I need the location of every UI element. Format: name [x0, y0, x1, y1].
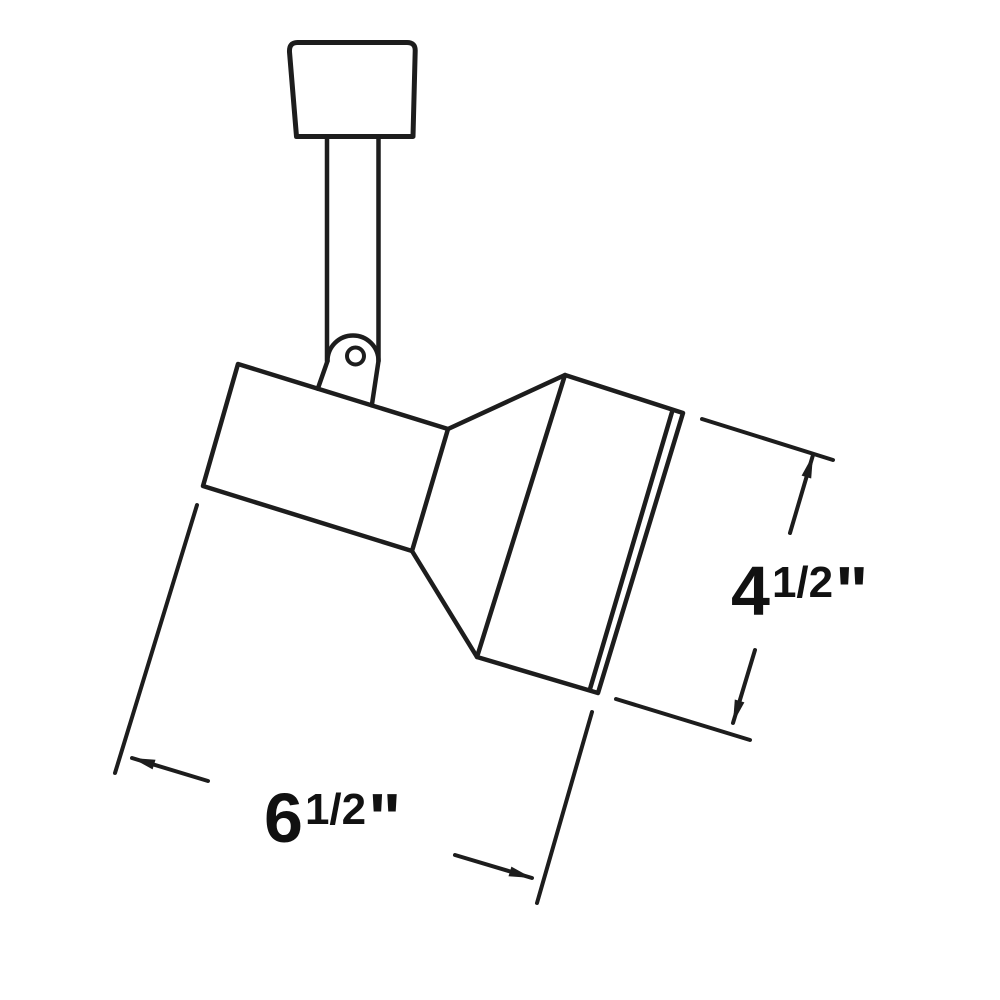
pivot-knuckle-right-edge — [372, 361, 379, 405]
height-dimension-label: 41/2" — [731, 552, 868, 630]
length-ext-line-right — [537, 712, 592, 903]
track-mount-base — [289, 43, 415, 137]
length-dimension-label: 61/2" — [264, 779, 401, 857]
length-arrowhead-left — [132, 758, 156, 769]
track-light-fixture-diagram: 41/2"61/2" — [0, 0, 1000, 1000]
flare-bottom-edge — [412, 551, 477, 657]
pivot-pin-hole — [347, 348, 364, 365]
lamp-cylinder-body — [477, 375, 683, 693]
lamp-housing-body — [203, 364, 448, 551]
length-ext-line-left — [115, 505, 197, 773]
length-arrowhead-right — [509, 867, 533, 878]
height-arrowhead-bottom — [733, 700, 744, 724]
pivot-knuckle-left-edge — [318, 361, 328, 389]
flare-top-edge — [448, 375, 565, 429]
height-ext-line-bottom — [616, 699, 750, 740]
front-rim-inner-line — [590, 412, 672, 689]
diagram-canvas: 41/2"61/2" — [0, 0, 1000, 1000]
height-arrowhead-top — [802, 455, 813, 479]
